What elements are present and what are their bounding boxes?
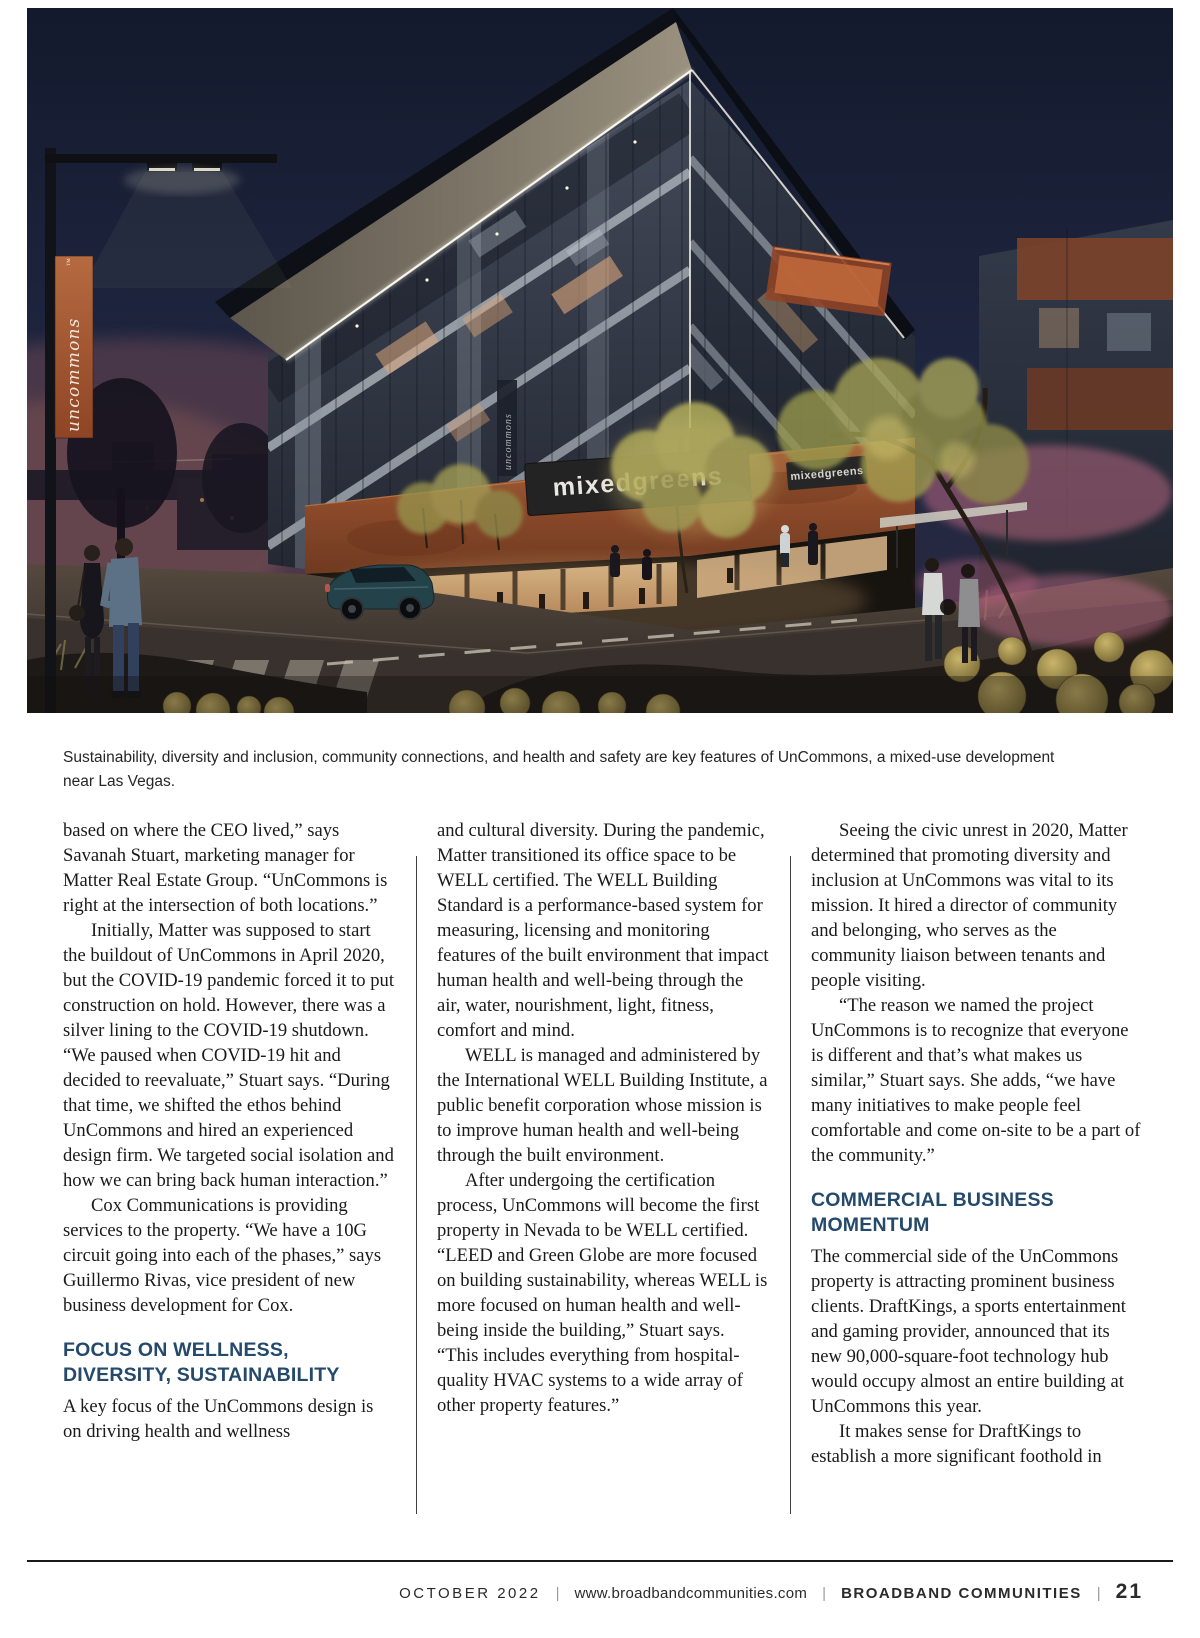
hero-scene: mixedgreens mixedgreens uncommons [27, 8, 1173, 713]
section-heading-momentum: COMMERCIAL BUSINESS MOMENTUM [811, 1188, 1117, 1238]
uncommons-banner: uncommons ™ [55, 256, 93, 438]
uncommons-column-text: uncommons [503, 413, 514, 470]
article-paragraph: based on where the CEO lived,” says Sava… [63, 818, 395, 918]
bottom-shade [27, 676, 1173, 713]
article-paragraph: and cultural diversity. During the pande… [437, 818, 769, 1043]
page-footer: OCTOBER 2022 | www.broadbandcommunities.… [399, 1580, 1143, 1604]
article-paragraph: After undergoing the certification proce… [437, 1168, 769, 1418]
uncommons-banner-text: uncommons [64, 317, 84, 432]
article-paragraph: Cox Communications is providing services… [63, 1193, 395, 1318]
section-heading-wellness: FOCUS ON WELLNESS, DIVERSITY, SUSTAINABI… [63, 1338, 369, 1388]
article-paragraph: Seeing the civic unrest in 2020, Matter … [811, 818, 1143, 993]
article-paragraph: Initially, Matter was supposed to start … [63, 918, 395, 1193]
footer-page-number: 21 [1116, 1580, 1143, 1604]
uncommons-banner-tm: ™ [65, 258, 74, 266]
article-paragraph: A key focus of the UnCommons design is o… [63, 1394, 395, 1444]
article-paragraph: It makes sense for DraftKings to establi… [811, 1419, 1143, 1469]
footer-publication: BROADBAND COMMUNITIES [841, 1585, 1082, 1602]
footer-rule [27, 1560, 1173, 1562]
article-paragraph: The commercial side of the UnCommons pro… [811, 1244, 1143, 1419]
article-column-3: Seeing the civic unrest in 2020, Matter … [811, 818, 1143, 1469]
footer-issue-date: OCTOBER 2022 [399, 1585, 540, 1602]
hero-photo: mixedgreens mixedgreens uncommons [27, 8, 1173, 713]
footer-separator: | [541, 1585, 575, 1602]
footer-website: www.broadbandcommunities.com [574, 1585, 807, 1602]
article-column-2: and cultural diversity. During the pande… [437, 818, 769, 1469]
article-body: based on where the CEO lived,” says Sava… [63, 818, 1143, 1469]
article-paragraph: WELL is managed and administered by the … [437, 1043, 769, 1168]
magazine-page: mixedgreens mixedgreens uncommons [0, 0, 1200, 1638]
photo-caption: Sustainability, diversity and inclusion,… [63, 746, 1063, 794]
article-paragraph: “The reason we named the project UnCommo… [811, 993, 1143, 1168]
footer-separator: | [1082, 1585, 1116, 1602]
article-column-1: based on where the CEO lived,” says Sava… [63, 818, 395, 1469]
uncommons-column: uncommons [497, 380, 517, 476]
footer-separator: | [807, 1585, 841, 1602]
